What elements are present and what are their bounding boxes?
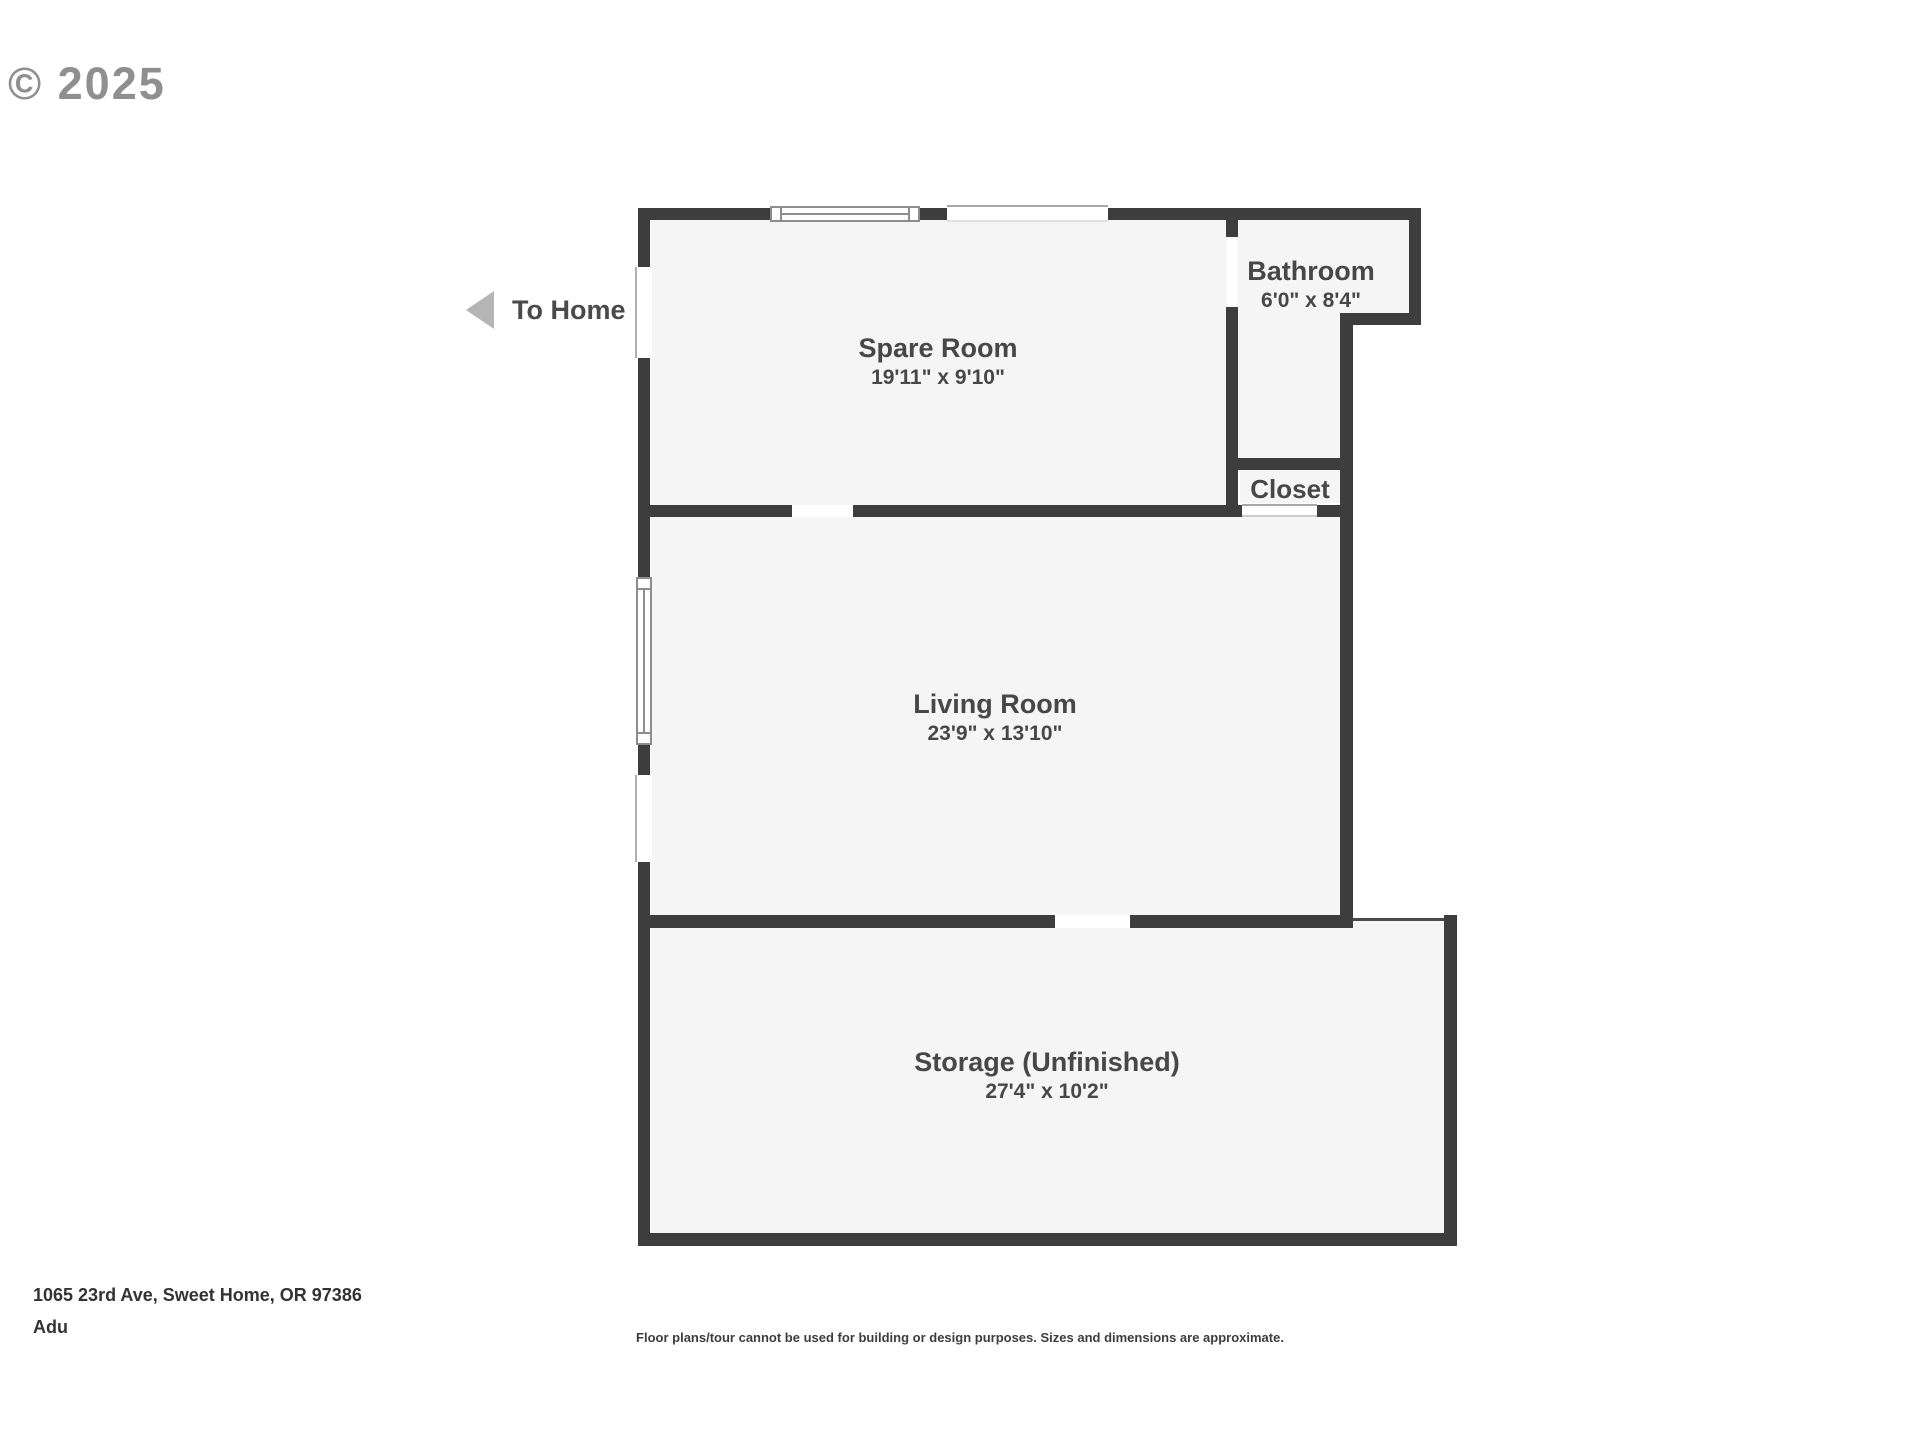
room-label-living-room: Living Room 23'9" x 13'10" xyxy=(650,688,1340,748)
window-midline xyxy=(782,213,908,215)
room-dimensions: 23'9" x 13'10" xyxy=(650,720,1340,747)
room-dimensions: 27'4" x 10'2" xyxy=(650,1078,1444,1105)
wall-segment xyxy=(1108,208,1421,220)
closet-door-opening xyxy=(1242,504,1317,517)
copyright-watermark: © 2025 xyxy=(8,58,166,110)
to-home-label: To Home xyxy=(512,295,626,326)
wall-segment xyxy=(1130,915,1353,928)
room-name: Spare Room xyxy=(650,332,1226,364)
wall-segment xyxy=(1340,313,1353,928)
window-jamb xyxy=(636,577,652,590)
room-dimensions: 6'0" x 8'4" xyxy=(1231,287,1391,314)
wall-segment xyxy=(920,208,947,220)
window-midline xyxy=(643,590,645,732)
wall-segment xyxy=(638,208,650,267)
wall-segment xyxy=(1444,915,1457,1246)
wall-segment xyxy=(638,745,650,775)
wall-segment xyxy=(1232,458,1353,470)
storage-top-edge xyxy=(1353,918,1447,921)
door-opening xyxy=(1055,915,1130,928)
wall-segment xyxy=(1226,208,1238,237)
floorplan-canvas: © 2025 To Home xyxy=(0,0,1920,1440)
door-opening xyxy=(635,775,652,862)
wall-segment xyxy=(1226,307,1238,517)
wall-segment xyxy=(1317,505,1353,517)
arrow-left-icon xyxy=(466,291,494,329)
wall-segment xyxy=(638,1233,1457,1246)
room-dimensions: 19'11" x 9'10" xyxy=(650,364,1226,391)
to-home-nav[interactable]: To Home xyxy=(466,291,626,329)
room-name: Living Room xyxy=(650,688,1340,720)
room-name: Bathroom xyxy=(1231,255,1391,287)
wall-segment xyxy=(638,208,770,220)
wall-segment xyxy=(638,358,650,577)
door-opening xyxy=(792,505,853,517)
wall-segment xyxy=(1409,208,1421,325)
wall-segment xyxy=(853,505,1242,517)
room-label-bathroom: Bathroom 6'0" x 8'4" xyxy=(1231,255,1391,315)
wall-segment xyxy=(638,915,1055,928)
room-label-closet: Closet xyxy=(1240,474,1340,505)
wall-segment xyxy=(638,505,792,517)
room-name: Closet xyxy=(1240,474,1340,505)
window-jamb xyxy=(770,206,782,222)
room-label-spare-room: Spare Room 19'11" x 9'10" xyxy=(650,332,1226,392)
window-jamb xyxy=(908,206,920,222)
window-symbol xyxy=(770,206,920,222)
floorplan-disclaimer: Floor plans/tour cannot be used for buil… xyxy=(0,1330,1920,1345)
door-opening xyxy=(947,205,1108,222)
room-label-storage: Storage (Unfinished) 27'4" x 10'2" xyxy=(650,1046,1444,1106)
room-name: Storage (Unfinished) xyxy=(650,1046,1444,1078)
property-address: 1065 23rd Ave, Sweet Home, OR 97386 xyxy=(33,1285,362,1306)
